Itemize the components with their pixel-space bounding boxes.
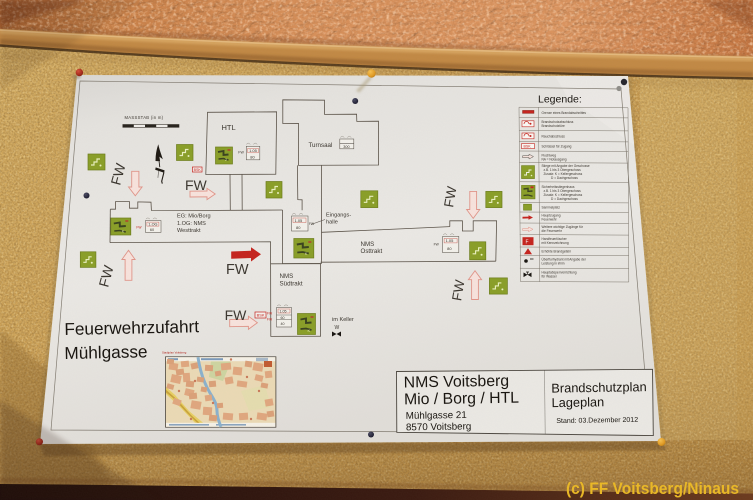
svg-text:(c) FF Voitsberg/Ninaus: (c) FF Voitsberg/Ninaus <box>566 480 739 498</box>
